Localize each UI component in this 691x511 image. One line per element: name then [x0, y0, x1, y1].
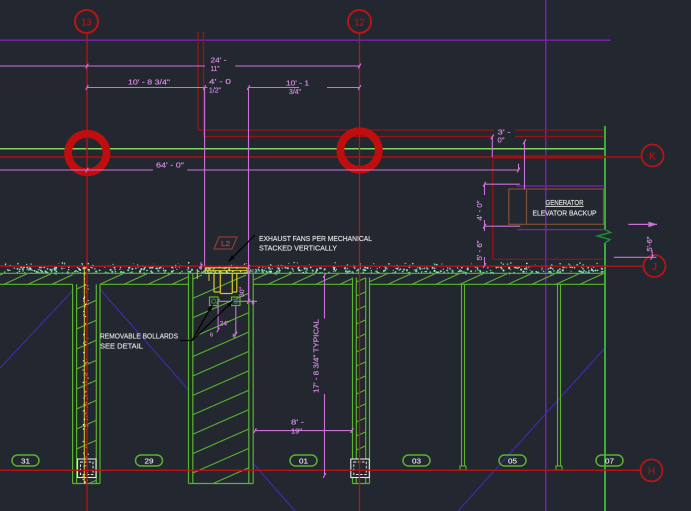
svg-text:REMOVABLE BOLLARDS: REMOVABLE BOLLARDS: [100, 332, 178, 341]
svg-text:4' - 0″: 4' - 0″: [477, 200, 484, 221]
svg-text:12: 12: [355, 17, 365, 29]
svg-text:5' - 6″: 5' - 6″: [477, 240, 484, 261]
svg-text:K: K: [649, 152, 656, 163]
svg-text:0": 0": [498, 136, 505, 145]
svg-text:07: 07: [605, 459, 614, 466]
svg-text:17′ - 8 3/4" TYPICAL: 17′ - 8 3/4" TYPICAL: [312, 319, 321, 393]
svg-text:29: 29: [145, 459, 154, 466]
svg-text:3/4": 3/4": [289, 87, 301, 96]
svg-text:31: 31: [21, 459, 30, 466]
svg-text:1/2": 1/2": [209, 86, 221, 95]
svg-text:19": 19": [291, 427, 302, 436]
svg-text:6: 6: [252, 301, 255, 307]
svg-text:5'-6″: 5'-6″: [647, 236, 654, 252]
svg-text:10′ - 8 3/4": 10′ - 8 3/4": [128, 78, 171, 87]
svg-text:SEE DETAIL: SEE DETAIL: [100, 342, 143, 351]
svg-text:6: 6: [233, 334, 236, 340]
svg-text:ELEVATOR BACKUP: ELEVATOR BACKUP: [533, 209, 597, 218]
svg-text:01: 01: [299, 459, 308, 466]
svg-text:05: 05: [508, 459, 517, 466]
svg-text:24": 24": [220, 321, 231, 328]
svg-text:11": 11": [211, 64, 220, 73]
svg-text:EXHAUST FANS PER MECHANICAL: EXHAUST FANS PER MECHANICAL: [259, 234, 372, 243]
svg-text:30": 30": [239, 286, 246, 297]
svg-text:8' -: 8' -: [291, 418, 305, 427]
svg-text:6: 6: [210, 333, 213, 339]
svg-text:J: J: [652, 262, 657, 273]
svg-text:STACKED VERTICALLY: STACKED VERTICALLY: [259, 244, 337, 253]
svg-text:L2: L2: [221, 241, 230, 248]
svg-text:GENERATOR: GENERATOR: [546, 198, 584, 207]
svg-text:H: H: [648, 466, 655, 477]
svg-text:64' - 0″: 64' - 0″: [156, 161, 185, 170]
svg-text:03: 03: [412, 459, 421, 466]
svg-text:13: 13: [82, 17, 92, 29]
